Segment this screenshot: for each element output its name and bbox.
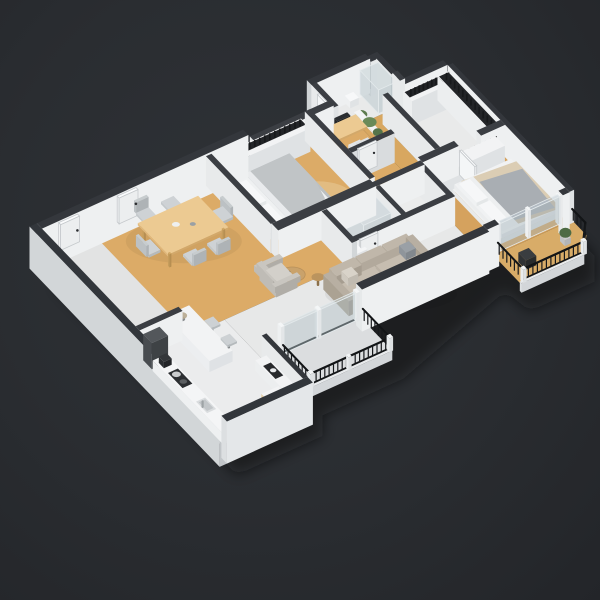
living-rail-post-2 — [346, 354, 352, 371]
table-deco-2 — [190, 222, 196, 226]
table-deco-1 — [172, 222, 180, 227]
side-table-top — [312, 273, 325, 281]
floorplan-render — [0, 0, 600, 600]
pot-2 — [180, 379, 188, 384]
master-rail-side — [572, 209, 585, 223]
counter-ne-dish — [270, 368, 276, 372]
master-glass-post-2 — [525, 206, 531, 239]
apartment-3d-model — [30, 52, 595, 475]
entry-door-handle — [76, 229, 79, 232]
office-door-handle — [373, 152, 375, 154]
pot-1 — [172, 372, 181, 378]
bath-door-handle — [374, 242, 376, 244]
table-leg-3 — [168, 252, 171, 268]
balcony-plant — [559, 228, 571, 238]
hall-door-handle — [135, 203, 138, 206]
master-rail-post-2 — [581, 238, 587, 256]
living-rail-post-3 — [387, 334, 394, 352]
scene-background — [0, 0, 600, 600]
master-rail-post-1 — [520, 266, 526, 284]
